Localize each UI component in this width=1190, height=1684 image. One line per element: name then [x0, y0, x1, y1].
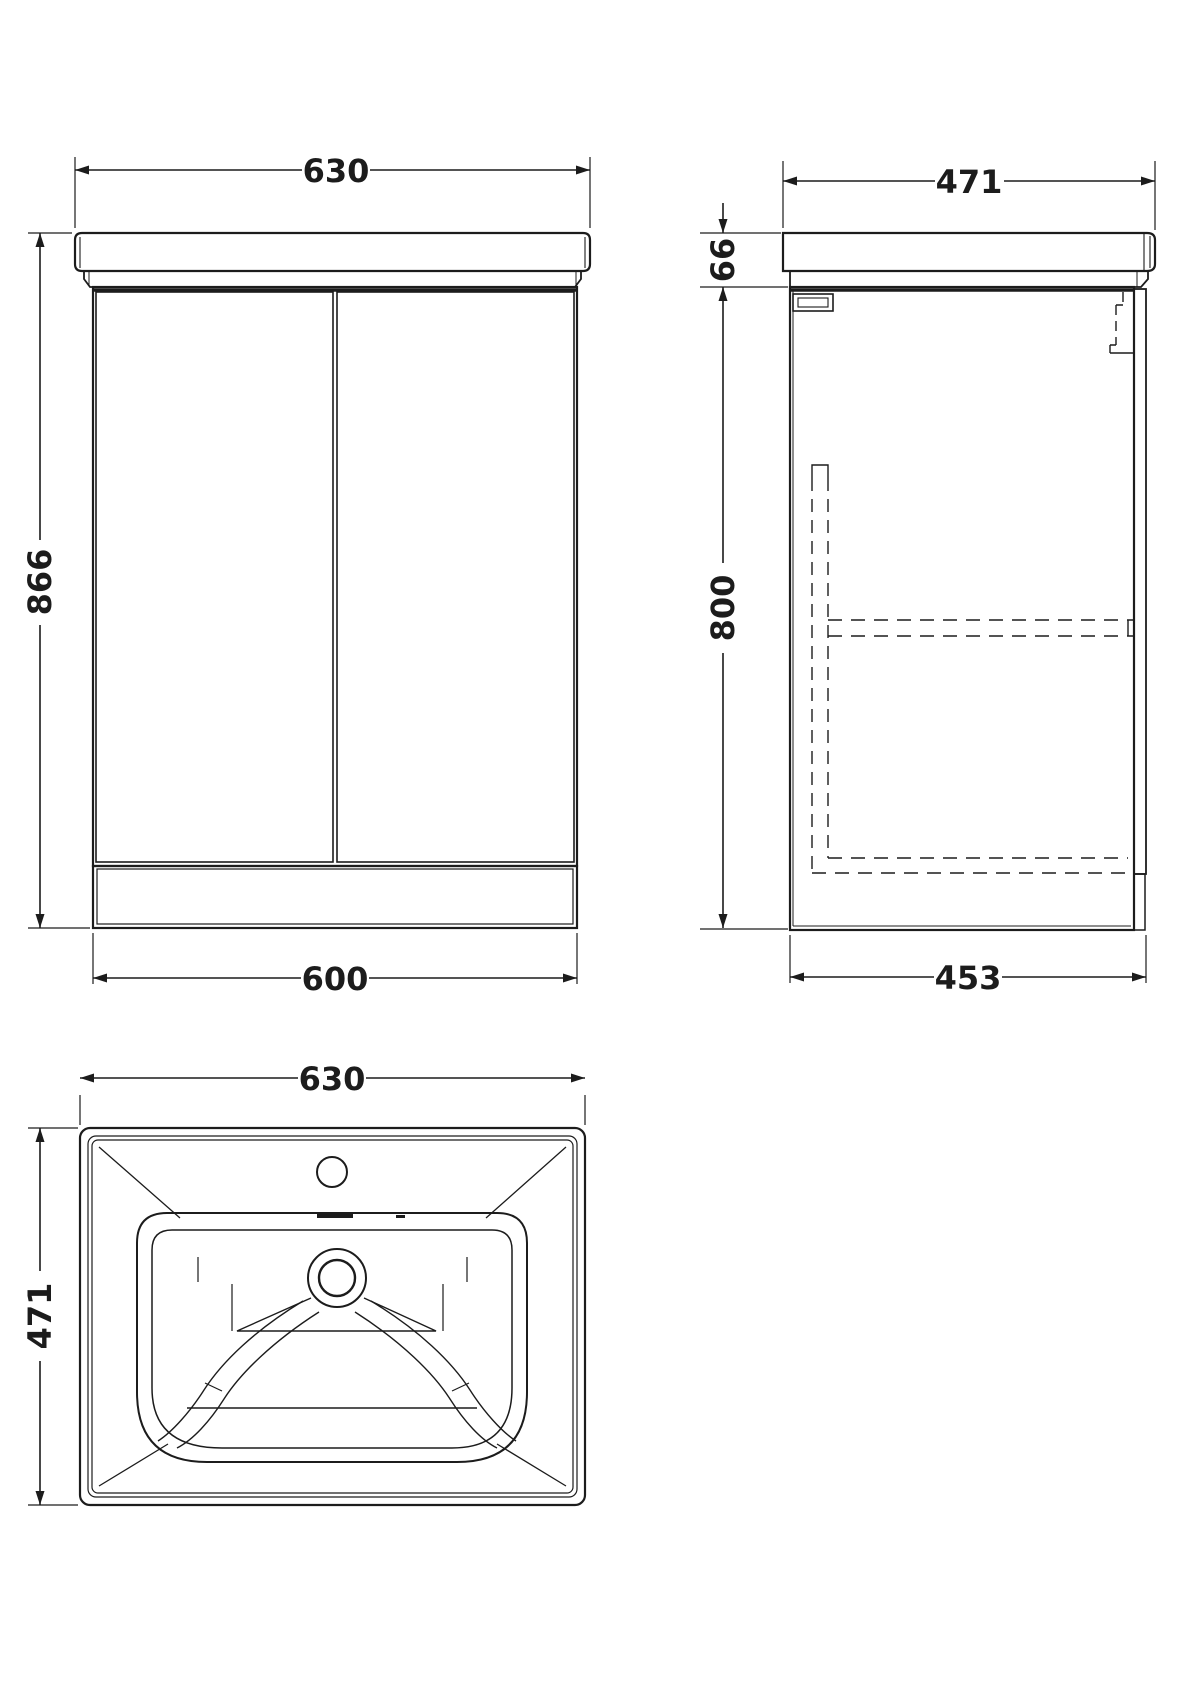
arrow-up [36, 233, 45, 247]
plan-dim-depth: 471 [21, 1128, 78, 1505]
carcass-inner-lines [793, 290, 1131, 926]
arrow-left [80, 1074, 94, 1083]
arrow-down [36, 1491, 45, 1505]
plinth [93, 866, 577, 928]
cabinet-carcass-side [790, 287, 1134, 930]
front-top-width-label: 630 [303, 152, 370, 190]
arrow-right [571, 1074, 585, 1083]
door-right [337, 292, 574, 862]
shelf-hidden-line [828, 620, 1134, 636]
basin-rim-line-1 [88, 1136, 577, 1497]
plan-depth-label: 471 [21, 1283, 59, 1350]
front-bottom-width-label: 600 [302, 960, 369, 998]
tap-hole [317, 1157, 347, 1187]
arrow-up [719, 287, 728, 301]
waste-outlet-outer [308, 1249, 366, 1307]
side-top-depth-label: 471 [936, 163, 1003, 201]
overflow-slot-small [396, 1215, 405, 1218]
plan-view: 630 [21, 1060, 585, 1505]
side-bottom-depth-label: 453 [935, 959, 1002, 997]
front-height-label: 866 [21, 549, 59, 616]
extension-lines [80, 1095, 585, 1125]
hinge-plate-inner [798, 298, 828, 307]
bowl-curve-left-outer [158, 1301, 303, 1441]
side-cabinet [790, 287, 1146, 930]
door-side-profile [1134, 289, 1146, 874]
hidden-panel-lines [812, 478, 828, 873]
side-worktop [783, 233, 1155, 287]
arrow-left [75, 166, 89, 175]
plan-dim-width: 630 [80, 1060, 585, 1125]
bowl-curve-right-inner [355, 1312, 497, 1448]
hinge-hidden-steps [1110, 305, 1134, 353]
technical-drawing-page: 630 866 [0, 0, 1190, 1684]
bowl-curve-right-tick [452, 1383, 469, 1391]
plan-width-label: 630 [299, 1060, 366, 1098]
front-view: 630 866 [21, 152, 590, 998]
bowl-curve-left-inner [177, 1312, 319, 1448]
bowl-curve-left-tick [205, 1383, 222, 1391]
bowl-wall-ticks [198, 1257, 467, 1331]
arrow-right [1141, 177, 1155, 186]
side-dim-worktop-height: 66 [700, 203, 788, 287]
front-dim-top-width: 630 [75, 152, 590, 228]
arrow-down [36, 914, 45, 928]
bottom-hidden-lines [812, 858, 1134, 873]
arrow-right [563, 974, 577, 983]
side-worktop-height-label: 66 [704, 238, 742, 283]
cabinet-carcass-front [93, 287, 577, 866]
front-cabinet [93, 287, 577, 928]
side-worktop-lip [790, 271, 1148, 287]
side-cabinet-height-label: 800 [704, 575, 742, 642]
plinth-inner-line [97, 869, 573, 924]
hinge-plate [793, 294, 833, 311]
side-dim-cabinet-height: 800 [700, 287, 788, 929]
plinth-side-profile [1134, 874, 1145, 930]
vanity-unit-technical-drawing: 630 866 [0, 0, 1190, 1684]
hinge-hidden-line [1110, 292, 1123, 353]
front-dim-bottom-width: 600 [93, 933, 577, 998]
front-dim-height: 866 [21, 233, 90, 928]
arrow-left [790, 973, 804, 982]
hidden-panel-cap [812, 465, 828, 478]
basin-rim-line-2 [92, 1140, 573, 1493]
arrow-down [719, 914, 728, 928]
waste-outlet-inner [319, 1260, 355, 1296]
front-worktop [75, 233, 590, 287]
arrow-right [1132, 973, 1146, 982]
arrow-left [93, 974, 107, 983]
bowl-inner-edge [152, 1230, 512, 1448]
overflow-slot [317, 1213, 353, 1218]
arrow-up [36, 1128, 45, 1142]
front-worktop-lip [84, 271, 581, 287]
side-dim-bottom-depth: 453 [790, 935, 1146, 997]
arrow-right [576, 166, 590, 175]
side-dim-top-depth: 471 [783, 161, 1155, 230]
door-left [96, 292, 333, 862]
side-view: 471 66 [700, 161, 1155, 997]
rim-corner-diagonals [99, 1147, 566, 1486]
arrow-down [719, 219, 728, 233]
basin-plan [80, 1128, 585, 1505]
arrow-left [783, 177, 797, 186]
